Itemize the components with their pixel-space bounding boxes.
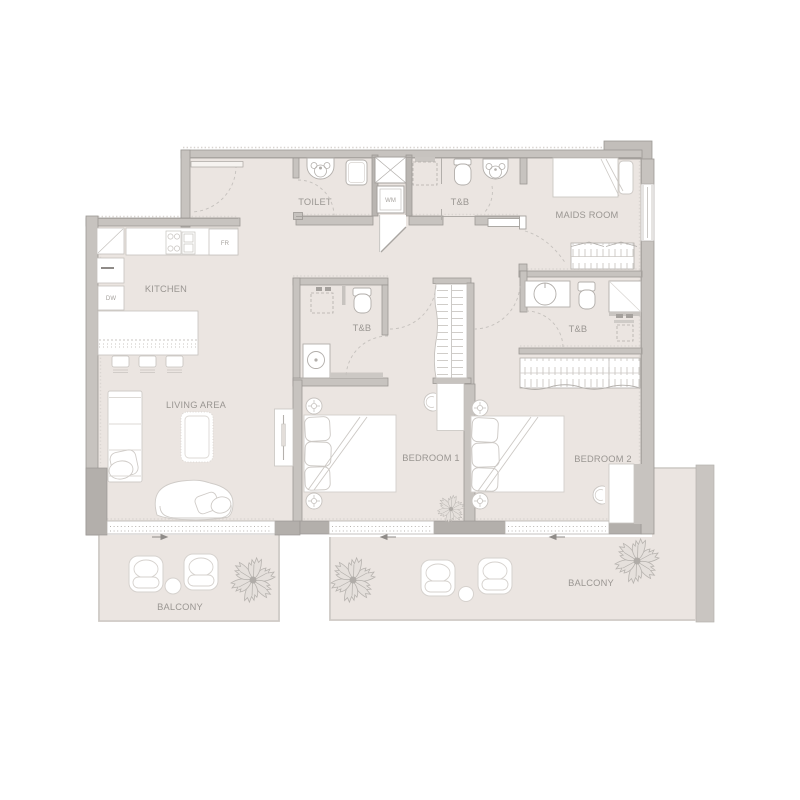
svg-text:BALCONY: BALCONY	[157, 602, 203, 612]
svg-text:BEDROOM 1: BEDROOM 1	[402, 453, 460, 463]
svg-text:LIVING AREA: LIVING AREA	[166, 400, 227, 410]
svg-text:T&B: T&B	[569, 324, 588, 334]
svg-text:DW: DW	[106, 296, 116, 302]
svg-text:WM: WM	[385, 198, 396, 204]
svg-text:FR: FR	[221, 241, 230, 247]
svg-text:T&B: T&B	[451, 197, 470, 207]
svg-text:BALCONY: BALCONY	[568, 578, 614, 588]
svg-text:TOILET: TOILET	[298, 197, 332, 207]
svg-text:MAIDS ROOM: MAIDS ROOM	[556, 210, 619, 220]
svg-text:T&B: T&B	[353, 323, 372, 333]
svg-text:BEDROOM 2: BEDROOM 2	[574, 454, 632, 464]
svg-text:KITCHEN: KITCHEN	[145, 284, 187, 294]
